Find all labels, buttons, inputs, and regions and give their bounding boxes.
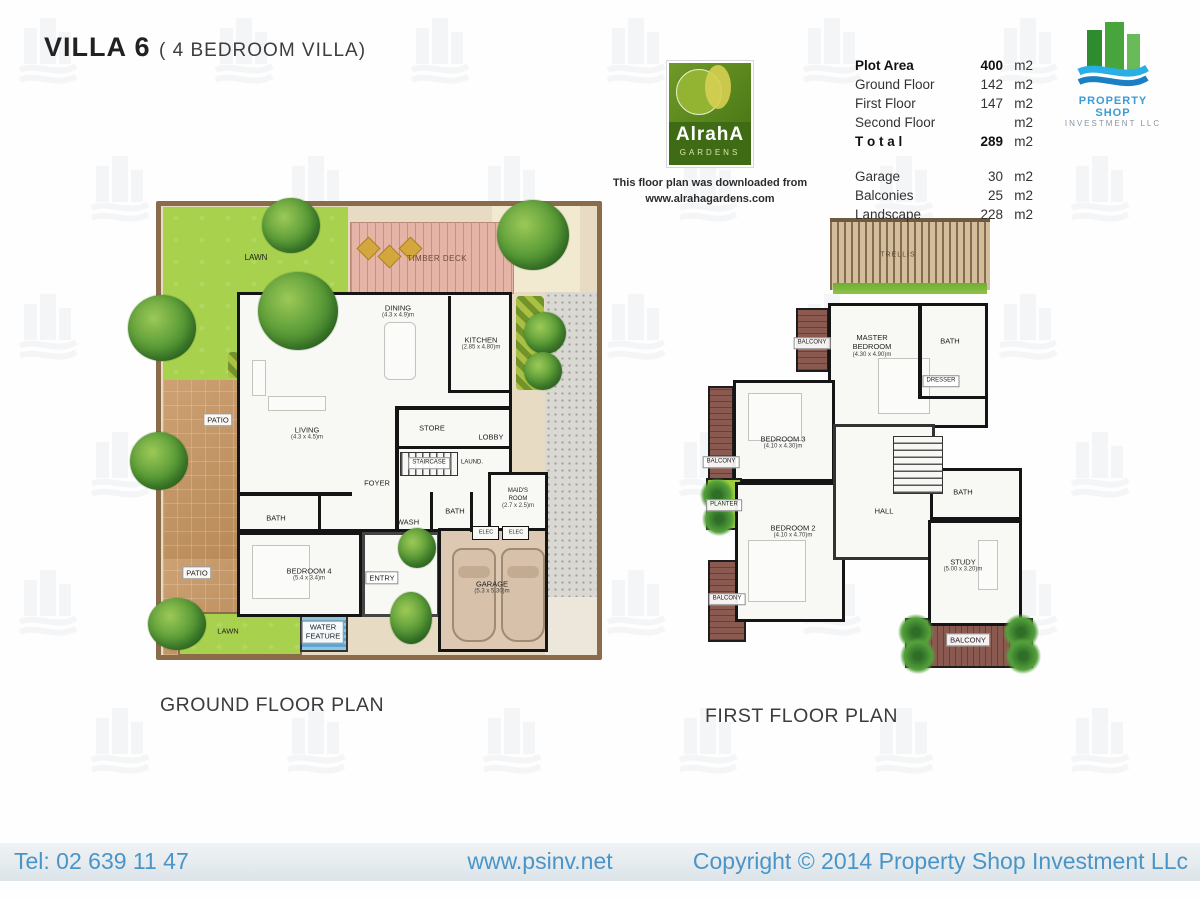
driveway-apron — [545, 597, 597, 655]
psi-name: PROPERTY SHOP — [1063, 95, 1163, 119]
label-balcony-bedroom3: BALCONY — [703, 456, 740, 468]
watermark-buildings-icon — [18, 564, 78, 638]
area-row-total: T o t a l289m2 — [855, 132, 1033, 151]
area-row: Second Floorm2 — [855, 113, 1033, 132]
watermark-buildings-icon — [1070, 150, 1130, 224]
footer-bar: Tel: 02 639 11 47 www.psinv.net Copyrigh… — [0, 843, 1200, 881]
alraha-gardens-logo: AlrahA GARDENS — [666, 60, 754, 168]
watermark-buildings-icon — [802, 12, 862, 86]
area-row: First Floor147m2 — [855, 94, 1033, 113]
furniture-dining-table — [384, 322, 416, 380]
room-label-bedroom4: BEDROOM 4(5.4 x 3.4)m — [286, 567, 331, 584]
tree — [497, 200, 569, 270]
furniture-sofa — [268, 396, 326, 411]
palm-plant — [900, 638, 936, 674]
tree — [524, 312, 566, 354]
tree — [262, 198, 320, 253]
watermark-buildings-icon — [90, 702, 150, 776]
room-label-bath: BATH — [266, 513, 285, 522]
room-label-lawn-bottom: LAWN — [217, 626, 238, 635]
room-label-store: STORE — [419, 423, 445, 432]
villa-title: VILLA 6 — [44, 32, 151, 62]
wall — [395, 406, 399, 532]
room-label-dining: DINING(4.3 x 4.9)m — [382, 304, 414, 321]
room-label-lobby: LOBBY — [478, 432, 503, 441]
room-label-maids-room: MAID'SROOM(2.7 x 2.5)m — [502, 488, 534, 511]
watermark-buildings-icon — [1070, 426, 1130, 500]
first-floor-caption: FIRST FLOOR PLAN — [705, 705, 898, 728]
download-note-line1: This floor plan was downloaded from — [613, 177, 807, 189]
psi-logo: PROPERTY SHOP INVESTMENT LLC — [1063, 22, 1163, 128]
room-label-living: LIVING(4.3 x 4.5)m — [291, 426, 323, 443]
download-note: This floor plan was downloaded from www.… — [612, 176, 808, 208]
room-label-elec: ELEC — [479, 530, 493, 537]
wall — [448, 390, 512, 393]
room-label-lawn: LAWN — [245, 253, 268, 263]
wall — [318, 492, 321, 532]
wall — [399, 446, 512, 449]
wall — [430, 492, 433, 532]
room-label-bath-right: BATH — [953, 487, 972, 496]
room-label-master-bedroom: MASTERBEDROOM(4.30 x 4.90)m — [853, 333, 892, 359]
wall — [918, 306, 922, 398]
room-label-entry: ENTRY — [365, 571, 398, 584]
room-label-laundry: LAUND. — [461, 459, 483, 467]
room-label-wash: WASH — [397, 517, 419, 526]
watermark-buildings-icon — [998, 288, 1058, 362]
room-label-garage: GARAGE(5.3 x 5.30)m — [474, 580, 509, 597]
psi-sub: INVESTMENT LLC — [1063, 119, 1163, 128]
area-row: Garage30m2 — [855, 167, 1033, 186]
download-note-line2: www.alrahagardens.com — [645, 193, 774, 205]
trellis-grass — [833, 283, 987, 294]
watermark-buildings-icon — [90, 150, 150, 224]
footer-copyright: Copyright © 2014 Property Shop Investmen… — [693, 848, 1188, 875]
alraha-logo-emblem — [669, 63, 751, 122]
label-balcony-bedroom2: BALCONY — [709, 593, 746, 605]
room-label-dresser: DRESSER — [922, 375, 959, 387]
wall — [237, 492, 352, 496]
wall — [918, 396, 986, 399]
villa-subtitle: ( 4 BEDROOM VILLA) — [159, 40, 366, 61]
room-label-kitchen: KITCHEN(2.85 x 4.80)m — [462, 336, 501, 353]
tree — [258, 272, 338, 350]
room-label-bath: BATH — [445, 506, 464, 515]
tree — [148, 598, 206, 650]
room-label-foyer: FOYER — [364, 478, 390, 487]
watermark-buildings-icon — [606, 12, 666, 86]
label-balcony-master: BALCONY — [794, 337, 831, 349]
room-label-patio: PATIO — [203, 413, 232, 426]
watermark-buildings-icon — [410, 12, 470, 86]
room-label-timber-deck: TIMBER DECK — [407, 254, 467, 264]
footer-website: www.psinv.net — [330, 848, 750, 875]
watermark-buildings-icon — [1070, 702, 1130, 776]
watermark-buildings-icon — [18, 288, 78, 362]
tree — [524, 352, 562, 390]
wall — [448, 296, 451, 392]
wall — [395, 406, 512, 410]
room-bath-first — [930, 468, 1022, 520]
label-trellis: TRELLIS — [880, 252, 915, 261]
area-row: Plot Area400m2 — [855, 56, 1033, 75]
watermark-buildings-icon — [606, 288, 666, 362]
room-label-water-feature: WATERFEATURE — [302, 621, 344, 644]
room-label-bedroom3: BEDROOM 3(4.10 x 4.30)m — [760, 435, 805, 452]
palm-plant — [1005, 638, 1041, 674]
ground-floor-caption: GROUND FLOOR PLAN — [160, 694, 384, 717]
room-label-bedroom2: BEDROOM 2(4.10 x 4.70)m — [770, 524, 815, 541]
footer-telephone: Tel: 02 639 11 47 — [14, 848, 189, 875]
room-label-staircase: STAIRCASE — [408, 457, 450, 469]
area-table: Plot Area400m2 Ground Floor142m2 First F… — [855, 56, 1033, 224]
room-label-bath: BATH — [940, 336, 959, 345]
page-title: VILLA 6 ( 4 BEDROOM VILLA) — [44, 32, 366, 63]
tree — [130, 432, 188, 490]
psi-buildings-icon — [1077, 22, 1149, 88]
watermark-buildings-icon — [482, 702, 542, 776]
label-planter: PLANTER — [706, 499, 742, 511]
area-row: Ground Floor142m2 — [855, 75, 1033, 94]
alraha-leaf-icon — [705, 65, 731, 109]
room-label-elec: ELEC — [509, 530, 523, 537]
area-row: Landscape228m2 — [855, 205, 1033, 224]
staircase-first — [893, 436, 943, 494]
room-label-patio: PATIO — [182, 566, 211, 579]
alraha-name: AlrahA — [669, 122, 751, 148]
furniture-sofa — [252, 360, 266, 396]
furniture-bed — [748, 540, 806, 602]
tree — [390, 592, 432, 644]
tree — [128, 295, 196, 361]
alraha-logo-text: AlrahA GARDENS — [669, 122, 751, 165]
room-label-hall: HALL — [875, 506, 894, 515]
alraha-gardens-label: GARDENS — [669, 148, 751, 157]
tree — [398, 528, 436, 568]
watermark-buildings-icon — [606, 564, 666, 638]
floorplan-page: VILLA 6 ( 4 BEDROOM VILLA) AlrahA GARDEN… — [0, 0, 1200, 900]
label-balcony-bottom: BALCONY — [946, 633, 990, 646]
area-row: Balconies25m2 — [855, 186, 1033, 205]
room-label-study: STUDY(5.00 x 3.20)m — [944, 558, 983, 575]
